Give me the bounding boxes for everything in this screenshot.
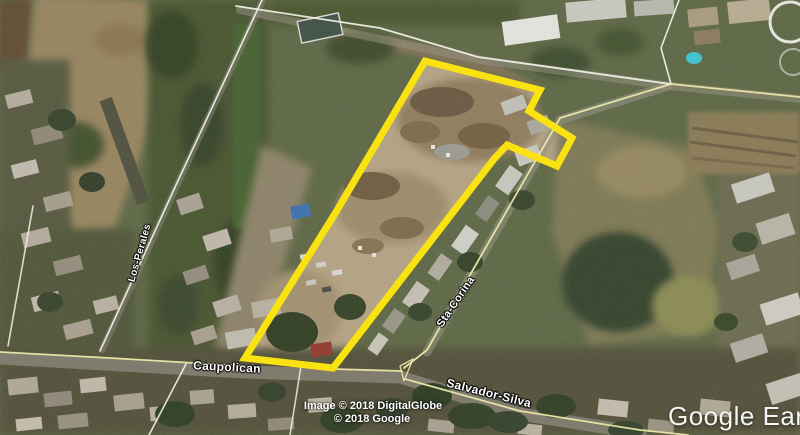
satellite-map-canvas[interactable]: Los-Perales Caupolican Sta-Corina Salvad… [0, 0, 800, 435]
image-grain [0, 0, 800, 435]
satellite-imagery [0, 0, 800, 435]
